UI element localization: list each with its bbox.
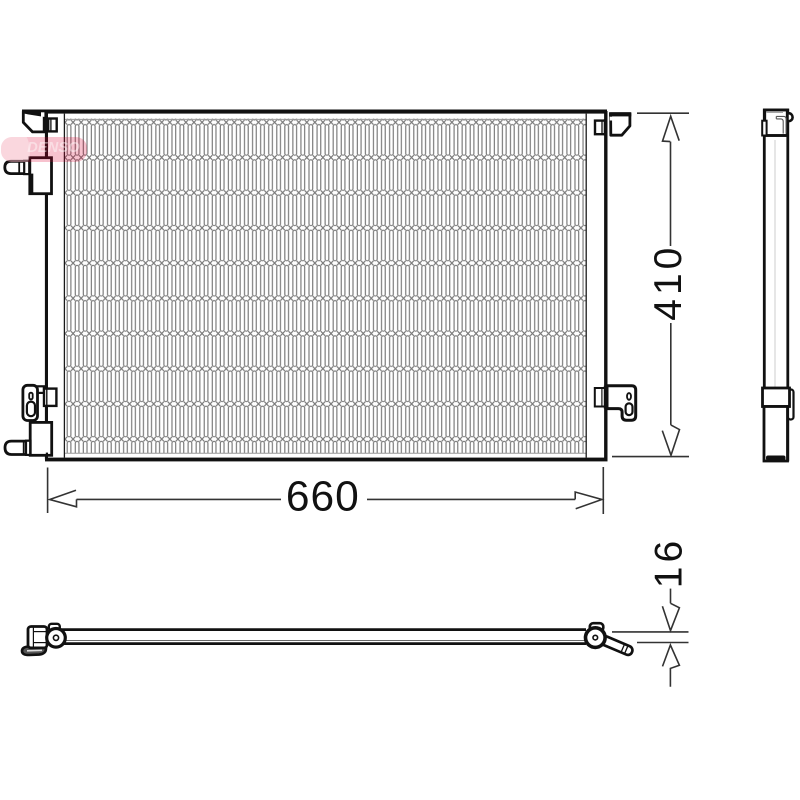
svg-text:410: 410: [647, 244, 690, 321]
svg-text:660: 660: [286, 474, 360, 521]
svg-text:16: 16: [648, 537, 691, 588]
